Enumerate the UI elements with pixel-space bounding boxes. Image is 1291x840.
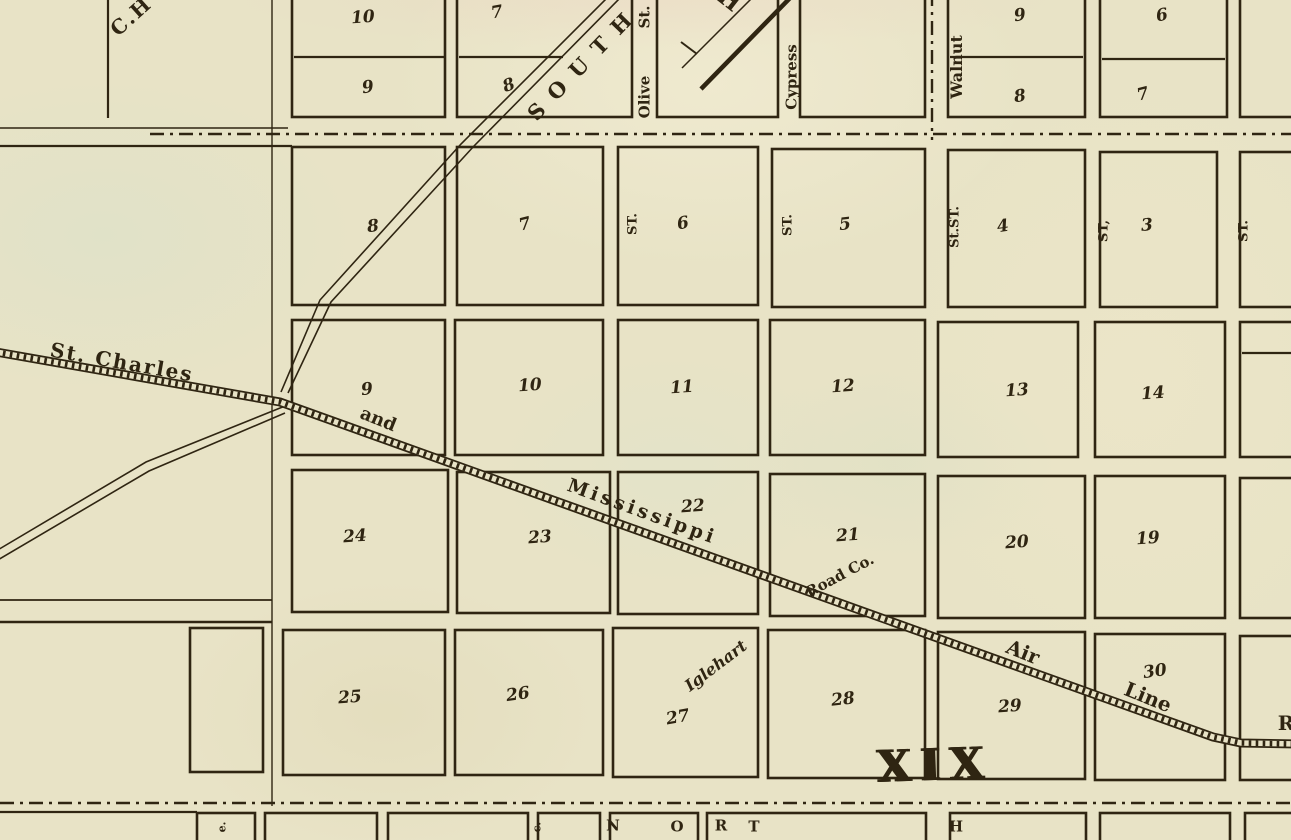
rail-spur [681, 0, 791, 89]
block-number-20: 20 [1005, 534, 1030, 553]
block-number-13: 13 [1005, 382, 1030, 401]
block-number-7: 7 [490, 4, 505, 23]
block-number-5: 5 [838, 216, 852, 234]
street-label-cypress: Cypress [785, 44, 800, 109]
block-number-22: 22 [681, 498, 706, 517]
street-label-st-1: ST. [627, 213, 640, 235]
block-number-8: 8 [366, 218, 380, 236]
plat-map-canvas: C.HSOUTHHOliveSt.CypressWalnutST.ST.St.S… [0, 0, 1291, 840]
street-label-olive: Olive [638, 76, 653, 119]
block-number-24: 24 [343, 528, 368, 547]
section-lines [0, 0, 1291, 803]
block-number-9: 9 [360, 381, 374, 399]
block-number-14: 14 [1141, 385, 1166, 404]
block-number-27: 27 [665, 708, 691, 729]
southwest-road [0, 404, 290, 561]
partial-street-label-2: c. [532, 822, 543, 833]
map-linework [0, 0, 1291, 840]
block-grid [190, 0, 1291, 840]
block-number-10: 10 [351, 9, 376, 28]
block-number-9: 9 [1013, 7, 1027, 25]
railroad-track [0, 352, 1291, 744]
street-label-walnut: Walnut [949, 35, 965, 99]
block-number-21: 21 [836, 527, 861, 546]
block-number-8: 8 [1013, 88, 1027, 106]
block-number-29: 29 [998, 698, 1023, 717]
street-label-st-4: ST, [1098, 220, 1111, 242]
street-label-olive-st: St. [638, 6, 653, 29]
compass-letter-r: R [715, 819, 727, 834]
block-number-23: 23 [528, 529, 553, 548]
partial-label-r: R [1278, 713, 1291, 733]
section-numeral-xix: XIX [875, 742, 992, 790]
block-number-26: 26 [505, 685, 531, 705]
compass-letter-n: N [606, 819, 620, 834]
block-number-28: 28 [830, 690, 855, 709]
block-number-30: 30 [1142, 662, 1168, 682]
block-number-6: 6 [676, 215, 691, 234]
block-number-4: 4 [996, 218, 1010, 236]
block-number-11: 11 [670, 379, 695, 398]
block-number-19: 19 [1136, 530, 1161, 549]
compass-letter-t: T [748, 820, 759, 835]
street-label-st-2: ST. [782, 214, 795, 236]
block-number-10: 10 [518, 377, 543, 396]
block-number-9: 9 [361, 79, 375, 97]
street-label-st-5: ST. [1238, 220, 1251, 242]
block-number-6: 6 [1155, 7, 1170, 26]
block-number-12: 12 [831, 378, 856, 397]
block-number-3: 3 [1140, 217, 1153, 235]
compass-letter-h: H [949, 820, 963, 835]
block-number-25: 25 [338, 689, 363, 708]
compass-letter-o: O [670, 820, 683, 835]
street-label-st-3: St.ST. [949, 206, 962, 248]
boundary-lines [0, 0, 292, 812]
partial-street-label-1: e. [217, 822, 228, 833]
